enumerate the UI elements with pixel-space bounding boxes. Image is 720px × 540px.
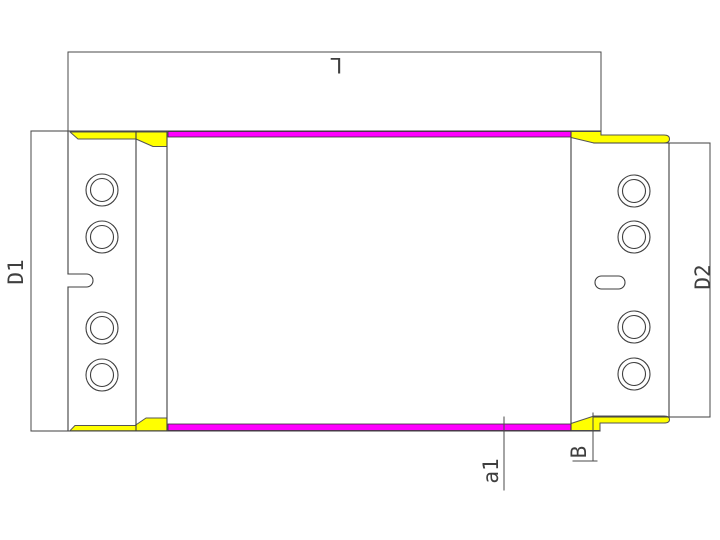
- hole-inner-circle: [623, 316, 646, 339]
- hole-inner-circle: [91, 364, 114, 387]
- hole-inner-circle: [91, 317, 114, 340]
- right-flange-holes: [618, 175, 650, 390]
- weld-bead-top-left: [70, 132, 167, 147]
- surface-strips: [168, 132, 571, 431]
- hole-inner-circle: [623, 226, 646, 249]
- label-edge-offset: B: [567, 446, 591, 459]
- cad-drawing: L D1 D2 a1 B: [0, 0, 720, 540]
- weld-bead-bottom-right: [571, 416, 670, 431]
- label-right-flange-height: D2: [691, 264, 715, 289]
- hole-inner-circle: [623, 180, 646, 203]
- label-left-flange-height: D1: [4, 259, 28, 284]
- label-surface-layer: a1: [479, 458, 503, 483]
- weld-bead-bottom-left: [70, 418, 167, 431]
- right-flange-slot: [595, 276, 625, 289]
- left-flange-notch: [68, 274, 93, 287]
- label-overall-length: L: [330, 53, 343, 77]
- weld-beads: [70, 132, 670, 431]
- left-flange-holes: [86, 174, 118, 391]
- part-outlines: [31, 131, 710, 431]
- hole-inner-circle: [91, 179, 114, 202]
- hole-inner-circle: [91, 226, 114, 249]
- weld-bead-top-right: [571, 132, 670, 144]
- cad-drawing-canvas: L D1 D2 a1 B: [0, 0, 720, 540]
- surface-strip-top: [168, 132, 571, 138]
- surface-strip-bottom: [168, 424, 571, 431]
- hole-inner-circle: [623, 363, 646, 386]
